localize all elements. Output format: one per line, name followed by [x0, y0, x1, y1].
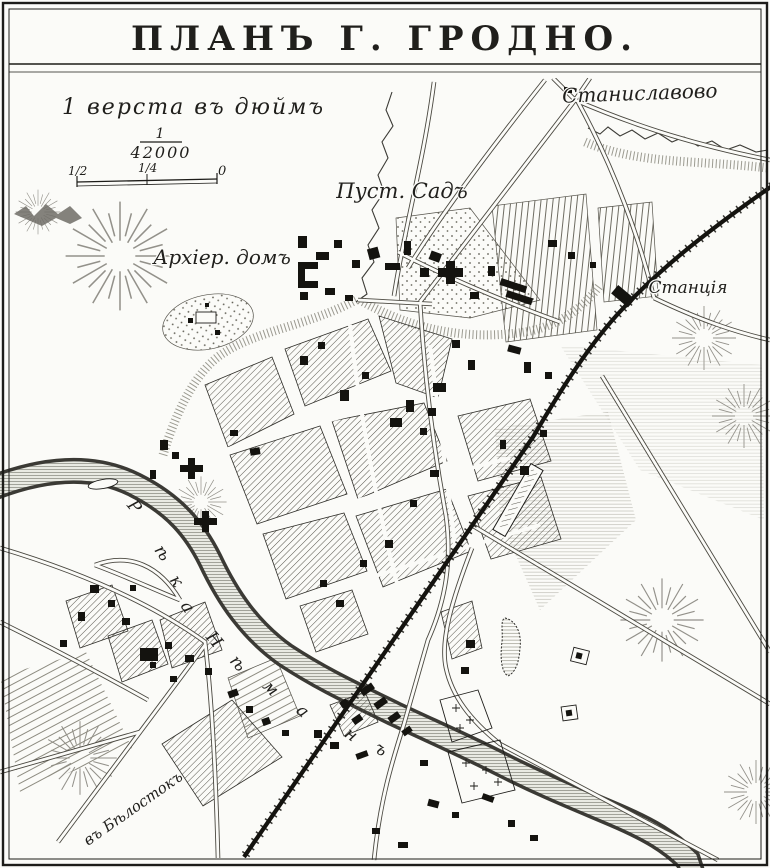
- map-title: ПЛАНЪ Г. ГРОДНО.: [131, 19, 639, 59]
- pond: [501, 618, 520, 676]
- svg-text:ъ: ъ: [371, 738, 391, 761]
- scale-tick-half: 1/2: [68, 164, 87, 178]
- monastery-cross-1: [180, 458, 203, 479]
- scale-tick-zero: 0: [218, 164, 226, 179]
- scale-block: 1 верста въ дюймъ 1 42000 1/2 1/4 0: [62, 95, 325, 187]
- scale-fraction-denominator: 42000: [130, 143, 192, 162]
- map-canvas: ПЛАНЪ Г. ГРОДНО. 1 верста въ дюймъ 1 420…: [0, 0, 770, 868]
- label-archier-dom: Архіер. домъ: [151, 245, 291, 269]
- scale-bar: [77, 173, 217, 187]
- label-stanislavovo: Станиславово: [562, 78, 718, 107]
- map-page: ПЛАНЪ Г. ГРОДНО. 1 верста въ дюймъ 1 420…: [0, 0, 770, 868]
- label-pust-sad: Пуст. Садъ: [335, 179, 467, 203]
- scale-caption: 1 верста въ дюймъ: [62, 95, 325, 120]
- label-belostok: въ Бѣлостокъ: [80, 767, 186, 849]
- scale-tick-quarter: 1/4: [138, 161, 157, 175]
- scale-fraction-numerator: 1: [156, 126, 165, 142]
- svg-text:к: к: [165, 571, 188, 591]
- ridge-mark: [14, 204, 82, 226]
- label-stantsia: Станція: [648, 278, 727, 298]
- outpost-squares: [561, 647, 589, 721]
- c-shaped-building: [298, 262, 318, 288]
- svg-text:ѣ: ѣ: [150, 541, 175, 565]
